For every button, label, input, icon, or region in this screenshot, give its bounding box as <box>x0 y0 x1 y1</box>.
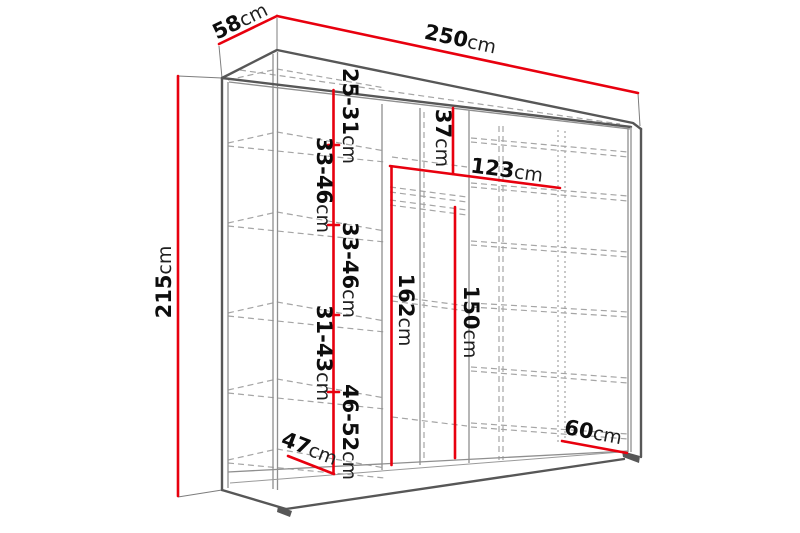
extension-line <box>219 46 222 78</box>
top-gap-label: 37cm <box>431 109 455 167</box>
mid-height-label: 162cm <box>394 274 418 347</box>
shelf-dash <box>228 132 277 143</box>
shelf-dash <box>390 187 467 197</box>
shelf-dash <box>471 307 628 317</box>
right-height-label: 150cm <box>459 286 483 359</box>
shelf-dash <box>228 316 385 332</box>
shelf-dash <box>390 192 467 202</box>
extension-line <box>178 490 222 497</box>
shelf-dash <box>228 379 277 390</box>
rail-length-label: 123cm <box>469 153 544 186</box>
extension-line <box>638 93 640 126</box>
shelf-dash <box>228 302 277 313</box>
interior-top-edge <box>229 82 630 129</box>
shelf-dash <box>277 69 385 88</box>
shelf-dash <box>228 146 385 162</box>
top-front-edge <box>222 78 631 127</box>
shelf-dash <box>471 245 628 257</box>
shelf-gap-3-label: 33-46cm <box>338 222 362 318</box>
wardrobe-diagram-canvas: 58cm 250cm 215cm 25-31cm 33-46cm 33-46cm… <box>0 0 800 533</box>
interior-bottom-edge <box>228 451 628 472</box>
wardrobe-diagram: 58cm 250cm 215cm 25-31cm 33-46cm 33-46cm… <box>0 0 800 533</box>
height-dimension-label: 215cm <box>152 246 176 319</box>
shelf-gap-4-label: 31-43cm <box>312 305 336 401</box>
shelf-gap-5-label: 46-52cm <box>338 384 362 480</box>
bottom-left-slant-edge <box>222 490 286 509</box>
shelf-dash <box>392 157 467 167</box>
width-dimension-label: 250cm <box>422 20 498 59</box>
extension-line <box>178 76 222 78</box>
shelf-gap-2-label: 33-46cm <box>312 137 336 233</box>
shelf-dash <box>228 212 277 223</box>
shelf-dash <box>228 449 277 460</box>
shelf-dash <box>471 138 628 152</box>
depth-dimension-label: 58cm <box>209 0 272 44</box>
shelf-dash <box>471 371 628 383</box>
shelf-dash <box>471 303 628 312</box>
shelf-gap-1-label: 25-31cm <box>338 68 362 164</box>
